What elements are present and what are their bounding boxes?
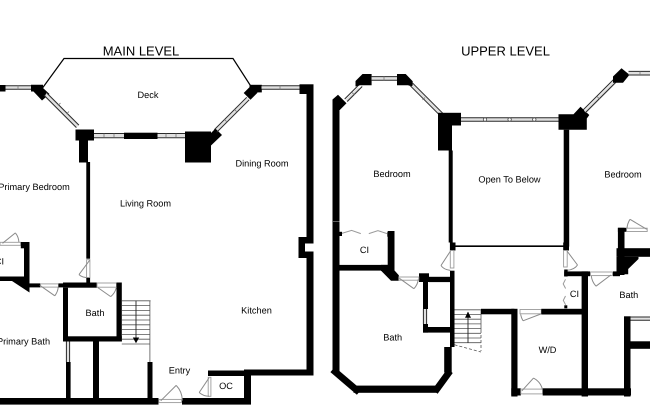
svg-text:CI: CI [0, 257, 4, 267]
svg-text:Open To Below: Open To Below [478, 174, 541, 184]
svg-text:Kitchen: Kitchen [241, 306, 272, 316]
svg-text:Deck: Deck [138, 90, 159, 100]
svg-text:Bedroom: Bedroom [373, 169, 411, 179]
svg-text:Living Room: Living Room [120, 199, 171, 209]
svg-text:Primary Bedroom: Primary Bedroom [0, 182, 70, 192]
svg-text:CI: CI [570, 289, 579, 299]
svg-text:Bedroom: Bedroom [604, 169, 642, 179]
svg-text:W/D: W/D [539, 345, 557, 355]
svg-text:OC: OC [219, 381, 233, 391]
svg-text:MAIN LEVEL: MAIN LEVEL [103, 44, 180, 59]
svg-text:Bath: Bath [86, 308, 105, 318]
svg-text:CI: CI [360, 245, 369, 255]
svg-text:Dining Room: Dining Room [235, 158, 288, 168]
svg-text:Primary Bath: Primary Bath [0, 337, 50, 347]
svg-text:Bath: Bath [383, 332, 402, 342]
svg-text:UPPER LEVEL: UPPER LEVEL [461, 44, 550, 59]
svg-text:Entry: Entry [169, 366, 191, 376]
svg-text:Bath: Bath [619, 290, 638, 300]
